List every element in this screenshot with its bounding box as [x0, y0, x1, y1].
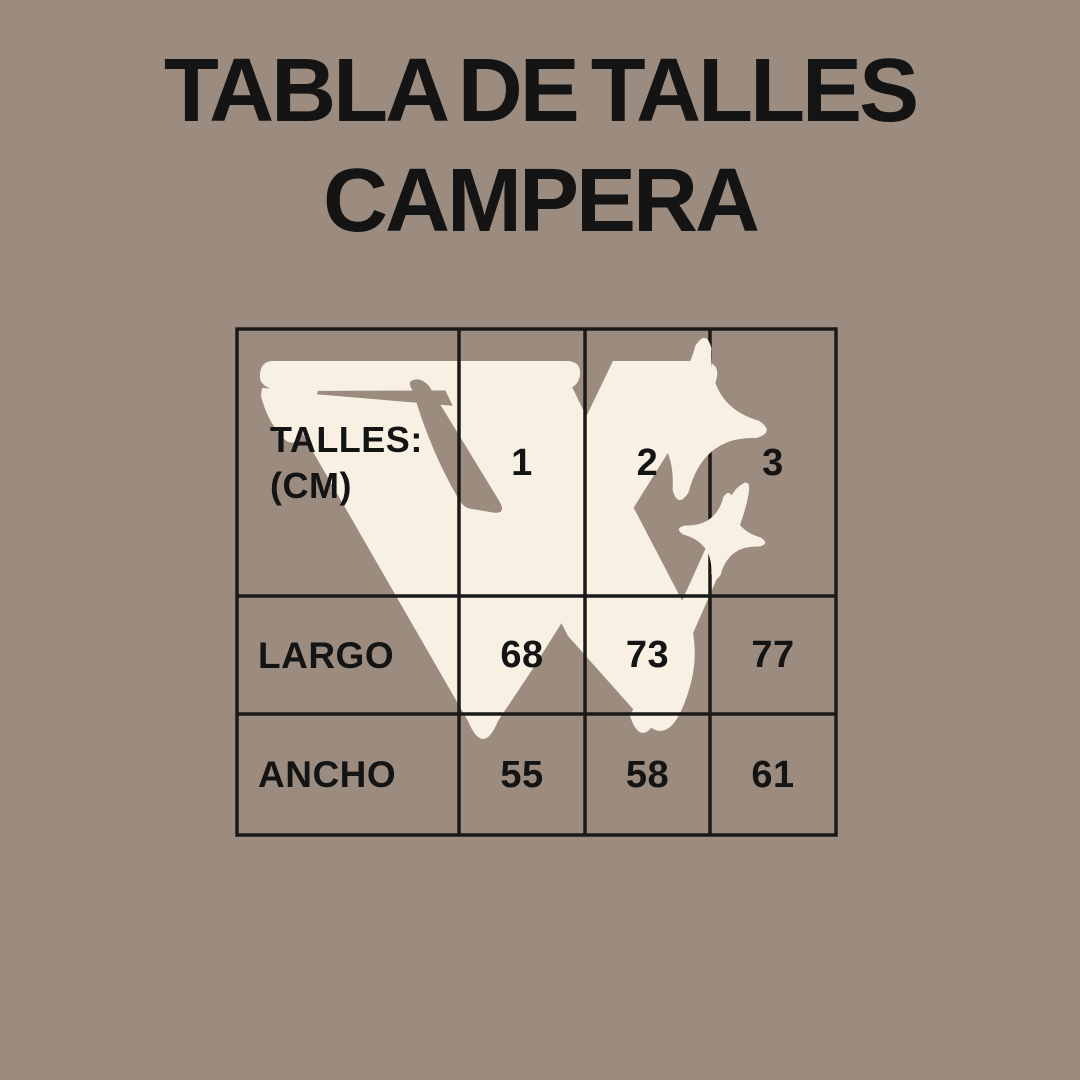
header-label-line2: (CM)	[270, 463, 455, 509]
header-size-1: 1	[459, 329, 585, 596]
header-size-3: 3	[710, 329, 836, 596]
page-title-line1: TABLA DE TALLES	[0, 46, 1080, 136]
page-title-line2: CAMPERA	[0, 156, 1080, 246]
size-chart-graphic: TABLA DE TALLES CAMPERA TALLES: (CM) 1 2…	[0, 0, 1080, 1080]
largo-size1-value: 68	[459, 596, 585, 714]
ancho-size2-value: 58	[585, 714, 710, 835]
largo-size3-value: 77	[710, 596, 836, 714]
header-label-line1: TALLES:	[270, 417, 455, 463]
row-label-largo: LARGO	[237, 596, 459, 714]
header-size-2: 2	[585, 329, 710, 596]
ancho-size3-value: 61	[710, 714, 836, 835]
row-label-ancho: ANCHO	[237, 714, 459, 835]
largo-size2-value: 73	[585, 596, 710, 714]
table-header-label: TALLES: (CM)	[270, 329, 455, 596]
ancho-size1-value: 55	[459, 714, 585, 835]
